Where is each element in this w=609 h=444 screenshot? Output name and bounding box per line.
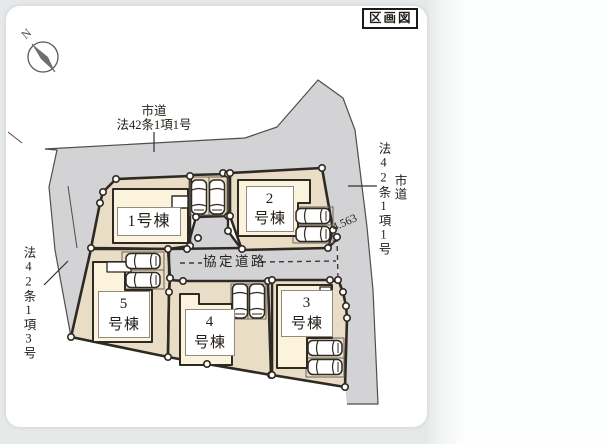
- north-compass-icon: N: [18, 25, 58, 72]
- car-icon: [210, 180, 225, 214]
- lot-5-label: 5 号棟: [98, 291, 150, 338]
- car-icon: [296, 227, 330, 242]
- car-icon: [308, 360, 342, 375]
- agreement-road-label: 協定道路: [203, 254, 267, 269]
- lot-1-label: 1号棟: [117, 207, 181, 236]
- plan-title-badge: 区画図: [362, 8, 418, 29]
- car-icon: [126, 254, 160, 269]
- top-road-label: 市道 法42条1項1号: [105, 104, 203, 132]
- lot-2-label: 2 号棟: [246, 186, 294, 232]
- top-road-type: 市道: [105, 104, 203, 118]
- car-icon: [308, 341, 342, 356]
- plot-plan-canvas: N 区画図 市道 法42条1項1号 法42条1項1号 市道 法42条1項3号 協…: [0, 0, 609, 444]
- car-icon: [192, 180, 207, 214]
- lot-3-label: 3 号棟: [281, 290, 333, 337]
- lot-4-label: 4 号棟: [185, 309, 235, 356]
- agreement-road-centerline: [261, 261, 336, 262]
- car-icon: [250, 284, 265, 318]
- right-road-law-label: 法42条1項1号: [377, 142, 390, 256]
- site-plan-drawing: N: [0, 0, 609, 444]
- left-road-law-label: 法42条1項3号: [22, 246, 35, 360]
- car-icon: [126, 273, 160, 288]
- right-road-type-label: 市道: [393, 174, 406, 201]
- car-icon: [296, 209, 330, 224]
- top-road-law: 法42条1項1号: [105, 118, 203, 132]
- compass-north-label: N: [18, 25, 34, 41]
